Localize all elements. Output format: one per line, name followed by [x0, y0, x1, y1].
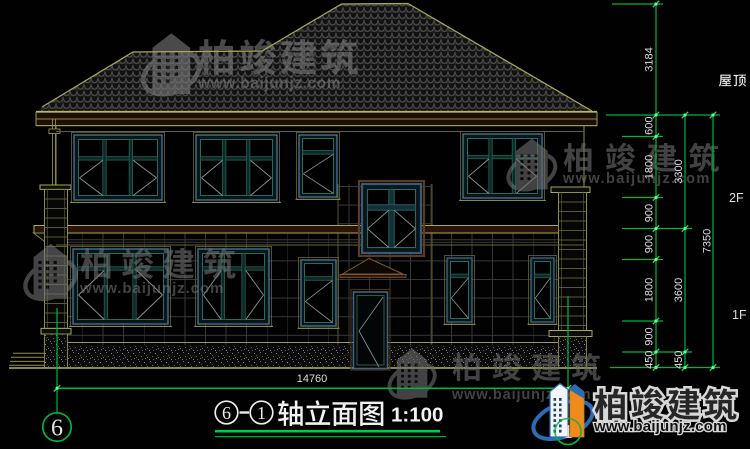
svg-text:3600: 3600 — [673, 278, 685, 302]
svg-text:600: 600 — [643, 117, 655, 135]
svg-text:14760: 14760 — [297, 373, 328, 385]
svg-text:1:100: 1:100 — [391, 404, 443, 427]
svg-text:1F: 1F — [732, 308, 747, 322]
svg-text:1800: 1800 — [643, 278, 655, 302]
svg-text:450: 450 — [673, 351, 685, 369]
svg-text:1: 1 — [563, 421, 573, 443]
svg-text:1: 1 — [257, 403, 266, 423]
svg-text:www.baijunjz.com: www.baijunjz.com — [593, 418, 727, 435]
svg-text:900: 900 — [643, 327, 655, 345]
svg-text:7350: 7350 — [701, 229, 713, 253]
svg-text:6: 6 — [51, 416, 63, 442]
svg-text:www.baijunjz.com: www.baijunjz.com — [197, 75, 341, 92]
svg-text:900: 900 — [643, 235, 655, 253]
svg-text:450: 450 — [643, 351, 655, 369]
svg-text:3184: 3184 — [643, 47, 655, 71]
svg-text:6: 6 — [222, 403, 231, 423]
svg-text:www.baijunjz.com: www.baijunjz.com — [562, 171, 711, 187]
svg-text:2F: 2F — [729, 191, 744, 205]
svg-text:3300: 3300 — [673, 159, 685, 183]
svg-text:900: 900 — [643, 204, 655, 222]
svg-text:1800: 1800 — [643, 155, 655, 179]
svg-text:www.baijunjz.com: www.baijunjz.com — [79, 280, 224, 297]
